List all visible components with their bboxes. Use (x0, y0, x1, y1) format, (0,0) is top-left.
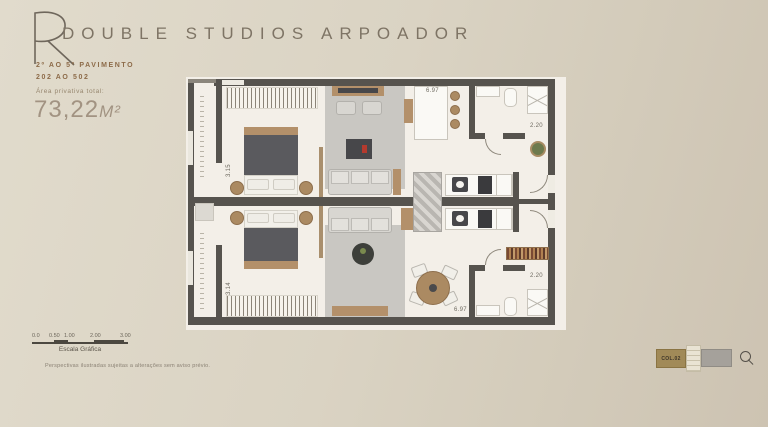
cabinet-right-top (496, 174, 512, 196)
bed-bottom-pillow-right (273, 213, 295, 223)
nightstand-bottom-left (230, 211, 244, 225)
unit-range-label: 202 AO 502 (36, 74, 90, 81)
kitchen-island-top (414, 86, 448, 140)
scale-caption: Escala Gráfica (32, 346, 128, 353)
wall-bath-bottom-h1 (469, 265, 485, 271)
pouf-plant-accent (360, 248, 366, 254)
closet-bottom (226, 295, 318, 317)
disclaimer-text: Perspectivas ilustradas sujeitas a alter… (45, 363, 210, 369)
entry-door-top (548, 175, 555, 193)
bed-top-footboard (244, 127, 298, 135)
closet-top (226, 87, 318, 109)
sofa-top-cushion-3 (371, 171, 389, 184)
door-arc-entry-bottom (530, 210, 548, 228)
sofa-bottom-cushion-3 (371, 218, 389, 231)
dining-table-center (429, 284, 437, 292)
bed-top-pillow-right (273, 179, 295, 190)
dim-unit-top: 6.97 (426, 88, 439, 94)
scale-bar: 0.0 0.50 1.00 2.00 3.00 Escala Gráfica (32, 333, 130, 357)
key-plan: COL.02 (656, 345, 734, 373)
scale-bar-segment-2 (94, 340, 124, 344)
door-arc-bath-top (485, 139, 501, 155)
north-compass-icon (740, 351, 754, 365)
stool-top-2 (450, 105, 460, 115)
window-left-top (188, 131, 193, 165)
nightstand-top-right (299, 181, 313, 195)
louver-ticks-bottom (200, 229, 204, 309)
louver-ticks-top (200, 93, 204, 177)
stool-top-3 (450, 119, 460, 129)
private-area-label: Área privativa total: (36, 88, 104, 95)
cooktop-top-unit (478, 176, 492, 194)
island-cabinet-top (404, 99, 413, 123)
bath-bottom-shower (527, 289, 548, 316)
window-left-bottom (188, 251, 193, 285)
wall-bath-top-v (469, 86, 475, 139)
ac-unit-bottom-left (195, 203, 214, 221)
floor-plan: 3.15 6.97 2.20 (186, 77, 566, 330)
scale-tick-1: 0.50 (49, 333, 60, 339)
nightstand-top-left (230, 181, 244, 195)
sofa-top-cushion-2 (351, 171, 369, 184)
armchair-top-right (362, 101, 382, 115)
floor-range-label: 2º AO 5º PAVIMENTO (36, 62, 134, 69)
armchair-top-left (336, 101, 356, 115)
sink-basin-top (456, 181, 464, 188)
coffee-table-accent (362, 145, 367, 153)
wall-center (188, 197, 518, 206)
sofa-bottom-cushion-1 (331, 218, 349, 231)
cabinet-right-bottom (496, 208, 512, 230)
wall-bottom (188, 317, 555, 325)
key-plan-core (686, 345, 701, 372)
divider-panel-top (319, 147, 323, 197)
dim-bedroom-bottom: 3.14 (226, 282, 232, 295)
bookshelf-bottom-hall (506, 247, 549, 260)
side-table-top (393, 169, 401, 195)
bed-bottom-footboard (244, 261, 298, 269)
dim-bath-bottom: 2.20 (530, 273, 543, 279)
dim-bath-top: 2.20 (530, 123, 543, 129)
stool-top-1 (450, 91, 460, 101)
shaft-hatch (413, 172, 442, 232)
bath-bottom-vanity (476, 305, 500, 316)
wall-bath-bottom-h2 (503, 265, 525, 271)
bath-top-toilet (504, 88, 517, 107)
door-arc-bath-bottom (485, 249, 501, 265)
wall-bath-top-h1 (469, 133, 485, 139)
kitchen-cabinet-bottom (401, 208, 413, 230)
wall-top (214, 79, 555, 86)
pouf-bottom (352, 243, 374, 265)
sofa-top-cushion-1 (331, 171, 349, 184)
key-plan-unit-highlight: COL.02 (656, 349, 686, 368)
door-arc-entry-top (530, 175, 548, 193)
wall-service-strip-top (216, 83, 222, 163)
brand-title: DOUBLE STUDIOS ARPOADOR (62, 24, 474, 44)
brochure-page: DOUBLE STUDIOS ARPOADOR 2º AO 5º PAVIMEN… (0, 0, 768, 427)
bed-top-duvet (244, 135, 298, 175)
dim-unit-bottom: 6.97 (454, 307, 467, 313)
area-unit: M² (99, 102, 121, 121)
scale-tick-4: 3.00 (120, 333, 131, 339)
wall-service-strip-bottom (216, 245, 222, 319)
wall-bath-top-h2 (503, 133, 525, 139)
divider-panel-bottom (319, 206, 323, 258)
sink-basin-bottom (456, 215, 464, 222)
nightstand-bottom-right (299, 211, 313, 225)
bath-top-vanity (476, 86, 500, 97)
sofa-bottom-cushion-2 (351, 218, 369, 231)
scale-tick-3: 2.00 (90, 333, 101, 339)
console-bottom (332, 306, 388, 316)
wall-bath-bottom-v (469, 265, 475, 317)
dim-bedroom-top: 3.15 (226, 164, 232, 177)
bed-bottom-duvet (244, 228, 298, 261)
scale-tick-2: 1.00 (64, 333, 75, 339)
bed-bottom-pillow-left (247, 213, 269, 223)
scale-bar-segment-1 (54, 340, 68, 344)
balcony-rail (188, 79, 216, 83)
coffee-table-top (346, 139, 372, 159)
plant-top-hall (530, 141, 546, 157)
wall-right (548, 79, 555, 325)
living-floor-bottom (325, 225, 405, 317)
entry-door-bottom (548, 210, 555, 228)
bath-bottom-toilet (504, 297, 517, 316)
bed-top-pillow-left (247, 179, 269, 190)
scale-tick-0: 0.0 (32, 333, 40, 339)
wall-hall-stub (513, 172, 519, 232)
private-area-value: 73,22M² (34, 96, 121, 124)
bath-top-shower (527, 86, 548, 114)
balcony-door-top (222, 80, 244, 85)
tv-top (338, 88, 378, 93)
key-plan-neighbor-block (701, 349, 732, 367)
wall-center-right (518, 199, 548, 204)
cooktop-bottom-unit (478, 210, 492, 228)
